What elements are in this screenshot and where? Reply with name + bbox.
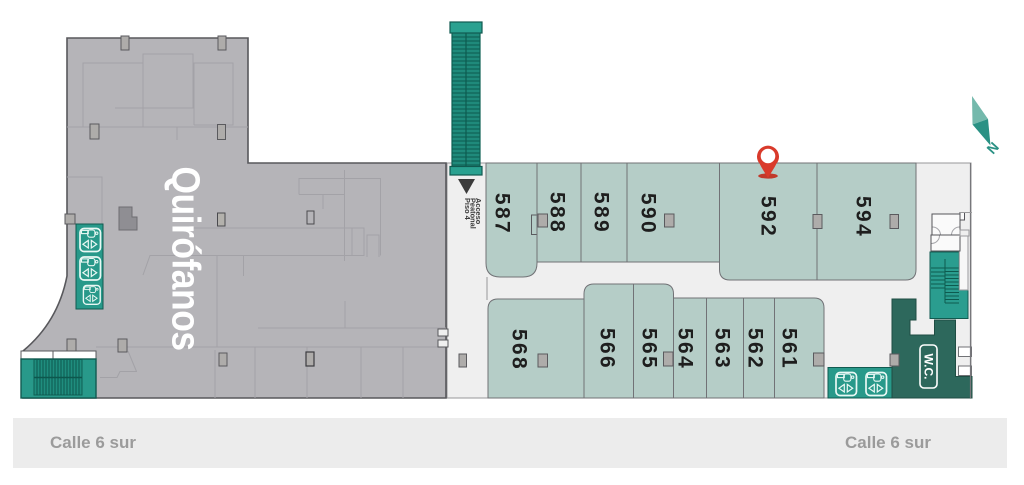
svg-text:568: 568 (508, 329, 531, 371)
svg-text:Calle 6 sur: Calle 6 sur (845, 433, 931, 452)
svg-text:587: 587 (491, 193, 514, 235)
svg-text:594: 594 (852, 196, 875, 238)
svg-text:562: 562 (744, 328, 767, 370)
svg-text:588: 588 (546, 192, 569, 234)
svg-text:565: 565 (638, 328, 661, 370)
svg-text:W.C.: W.C. (922, 354, 936, 380)
svg-text:592: 592 (757, 196, 780, 238)
svg-text:564: 564 (674, 328, 697, 370)
svg-text:561: 561 (778, 328, 801, 370)
svg-text:590: 590 (637, 193, 660, 235)
svg-text:Piso 4: Piso 4 (463, 198, 472, 221)
svg-text:589: 589 (590, 192, 613, 234)
svg-text:Calle 6 sur: Calle 6 sur (50, 433, 136, 452)
svg-text:563: 563 (711, 328, 734, 370)
svg-text:Quirófanos: Quirófanos (163, 166, 207, 350)
svg-text:566: 566 (596, 328, 619, 370)
